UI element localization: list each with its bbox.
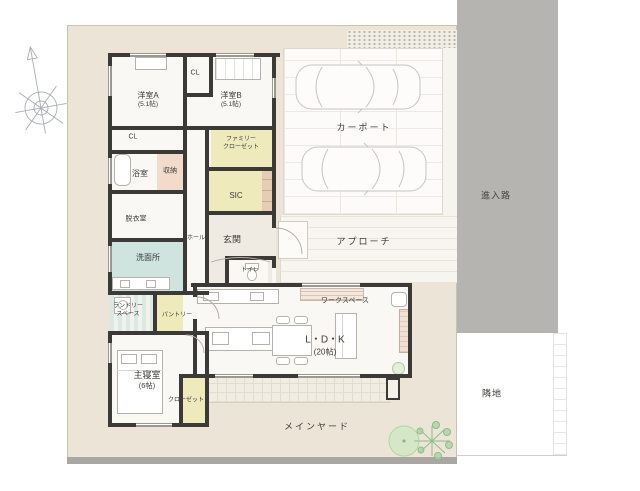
room-label-hall: ホール: [187, 235, 205, 243]
car-outline: [302, 143, 426, 195]
room-label-yoshitsu-b: 洋室B (5.1帖): [220, 91, 241, 109]
room-label-pantry: パントリー: [162, 312, 192, 320]
room-label-laundry: ランドリー スペース: [113, 304, 143, 319]
room-label-ldk: L・D・K (20帖): [305, 335, 344, 358]
room-label-cl-left: CL: [129, 134, 138, 143]
room-label-washroom: 洗面所: [136, 253, 160, 263]
room-label-family-closet: ファミリー クローゼット: [223, 137, 259, 152]
room-label-sic: SIC: [229, 191, 242, 201]
plan-overlay: [0, 0, 640, 491]
room-label-bath: 浴室: [132, 169, 148, 179]
room-label-storage: 収納: [163, 168, 177, 177]
area-label-main-yard: メインヤード: [284, 421, 350, 432]
room-label-master: 主寝室 (6帖): [133, 370, 160, 390]
room-label-closet: クローゼット: [168, 397, 204, 405]
room-label-yoshitsu-a: 洋室A (5.1帖): [137, 91, 158, 109]
tree-icon: [389, 422, 453, 460]
floor-plan: 洋室A (5.1帖) CL 洋室B (5.1帖) ファミリー クローゼット CL…: [0, 0, 640, 491]
area-label-carport: カーポート: [336, 122, 391, 133]
room-label-toilet: トイレ: [241, 267, 259, 275]
area-label-road: 進入路: [481, 190, 511, 201]
room-label-entrance: 玄関: [223, 234, 241, 245]
car-outline: [296, 61, 420, 113]
room-label-workspace: ワークスペース: [321, 298, 369, 307]
compass-icon: [5, 42, 71, 138]
area-label-approach: アプローチ: [336, 236, 391, 247]
door-arcs: [186, 228, 302, 353]
room-label-cl-top: CL: [191, 70, 200, 79]
area-label-adjacent: 隣地: [482, 388, 502, 399]
room-label-dressing: 脱衣室: [126, 216, 147, 225]
